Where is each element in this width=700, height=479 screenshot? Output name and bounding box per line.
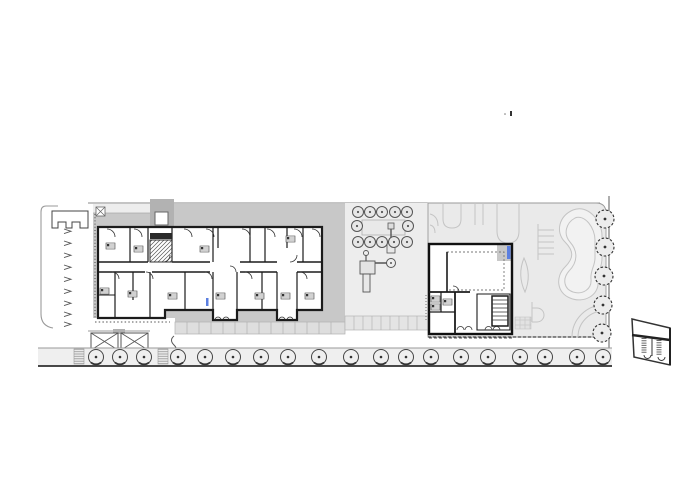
tree-trunk-dot [350,356,353,359]
right-building [426,244,512,338]
tree-trunk-dot [381,241,383,243]
kitchen-fixture-icon [443,299,452,305]
outbuilding [632,319,670,365]
courtyard-tree-icon [353,237,364,248]
fixture-dot [287,237,289,239]
elevator-core [150,233,172,239]
boundary-tree-icon [596,238,614,256]
accent-door-mark [507,246,511,259]
play-disc-dot [390,262,392,264]
tree-trunk-dot [318,356,321,359]
street-tree-icon [481,350,496,365]
kitchen-fixture-icon [168,293,177,299]
paving-patch [515,317,531,329]
play-platform [360,261,375,274]
street-tree-icon [513,350,528,365]
tree-trunk-dot [232,356,235,359]
tree-trunk-dot [604,246,607,249]
left-curb [41,206,88,328]
courtyard-tree-icon [402,207,413,218]
tree-trunk-dot [177,356,180,359]
fixture-dot [256,294,258,296]
street-tree-icon [399,350,414,365]
pergola [362,220,405,235]
street-tree-icon [137,350,152,365]
street-tree-icon [570,350,585,365]
courtyard [345,203,428,330]
street-tree-icon [538,350,553,365]
kitchen-fixture-icon [281,293,290,299]
arrow-icon [64,229,71,234]
courtyard-tree-icon [403,221,414,232]
fixture-dot [129,292,131,294]
arrow-icon [64,241,71,246]
boundary-tree-icon [595,267,613,285]
tree-trunk-dot [381,211,383,213]
tree-trunk-dot [576,356,579,359]
tree-trunk-dot [356,225,358,227]
kitchen-fixture-icon [100,288,109,294]
courtyard-tree-icon [353,207,364,218]
ramp-hatch-icon [74,349,84,364]
tree-trunk-dot [119,356,122,359]
kitchen-fixture-icon [128,291,137,297]
courtyard-tree-icon [377,237,388,248]
courtyard-tree-icon [365,237,376,248]
tree-trunk-dot [369,241,371,243]
tree-trunk-dot [602,304,605,307]
arrow-icon [64,289,71,294]
terrace-tile-band [175,322,345,334]
pavilion-stair [492,296,508,326]
tree-trunk-dot [204,356,207,359]
fixture-dot [432,297,434,299]
boundary-tree-icon [596,210,614,228]
bike-shelter-icon [91,333,118,350]
fixture-dot [217,294,219,296]
courtyard-tree-icon [365,207,376,218]
street-tree-icon [281,350,296,365]
site-plan-drawing [0,0,700,479]
fixture-dot [101,289,103,291]
porch-skylight [155,212,168,225]
accent-door-mark [206,298,209,306]
kitchen-fixture-icon [431,296,440,302]
bike-shelter-icon [121,333,148,350]
tree-trunk-dot [369,211,371,213]
tree-trunk-dot [604,218,607,221]
tree-trunk-dot [407,225,409,227]
tree-trunk-dot [460,356,463,359]
tree-trunk-dot [357,211,359,213]
play-slide [363,274,370,292]
kitchen-fixture-icon [216,293,225,299]
street-tree-icon [89,350,104,365]
street-tree-icon [596,350,611,365]
parking-arrow-group [64,229,71,327]
kitchen-fixture-icon [431,304,440,310]
tree-trunk-dot [519,356,522,359]
fixture-dot [282,294,284,296]
courtyard-tree-icon [390,207,401,218]
boundary-tree-icon [593,324,611,342]
courtyard-tile-band [345,316,428,330]
tree-trunk-dot [405,356,408,359]
tree-trunk-dot [406,211,408,213]
tree-trunk-dot [487,356,490,359]
stray-mark [504,111,512,116]
arrow-icon [64,322,71,327]
courtyard-tree-icon [402,237,413,248]
site-plan-canvas [0,0,700,479]
play-pole-cap [388,223,394,229]
arrow-icon [64,253,71,258]
arrow-icon [64,312,71,317]
street-tree-icon [344,350,359,365]
fixture-dot [107,244,109,246]
fixture-dot [135,247,137,249]
street-tree-icon [454,350,469,365]
kitchen-fixture-icon [255,293,264,299]
street-tree-icon [374,350,389,365]
tree-trunk-dot [380,356,383,359]
fixture-dot [432,305,434,307]
tree-trunk-dot [602,356,605,359]
street-tree-icon [226,350,241,365]
outbuilding-outline [632,319,670,365]
survey-mark-icon [510,111,512,116]
street-tree-icon [171,350,186,365]
courtyard-tree-icon [377,207,388,218]
arrow-icon [64,301,71,306]
street-tree-icon [113,350,128,365]
fixture-dot [306,294,308,296]
survey-dot [504,113,506,115]
tree-trunk-dot [260,356,263,359]
tree-trunk-dot [603,275,606,278]
tree-trunk-dot [143,356,146,359]
tree-trunk-dot [357,241,359,243]
courtyard-tree-icon [352,221,363,232]
tree-trunk-dot [393,241,395,243]
fixture-dot [169,294,171,296]
tree-trunk-dot [95,356,98,359]
fixture-dot [444,300,446,302]
arrow-icon [64,277,71,282]
kitchen-fixture-icon [286,236,295,242]
tree-trunk-dot [406,241,408,243]
kitchen-fixture-icon [305,293,314,299]
street [38,348,612,366]
arrow-icon [64,265,71,270]
courtyard-tree-icon [389,237,400,248]
tree-trunk-dot [430,356,433,359]
tree-trunk-dot [544,356,547,359]
ramp-hatch-icon [158,349,168,364]
kitchen-fixture-icon [106,243,115,249]
tree-trunk-dot [601,332,604,335]
planter [52,211,88,228]
kitchen-fixture-icon [134,246,143,252]
street-tree-icon [254,350,269,365]
kitchen-fixture-icon [200,246,209,252]
tree-trunk-dot [287,356,290,359]
street-tree-icon [312,350,327,365]
fixture-dot [201,247,203,249]
boundary-tree-icon [594,296,612,314]
street-tree-icon [424,350,439,365]
tree-trunk-dot [394,211,396,213]
street-tree-icon [198,350,213,365]
